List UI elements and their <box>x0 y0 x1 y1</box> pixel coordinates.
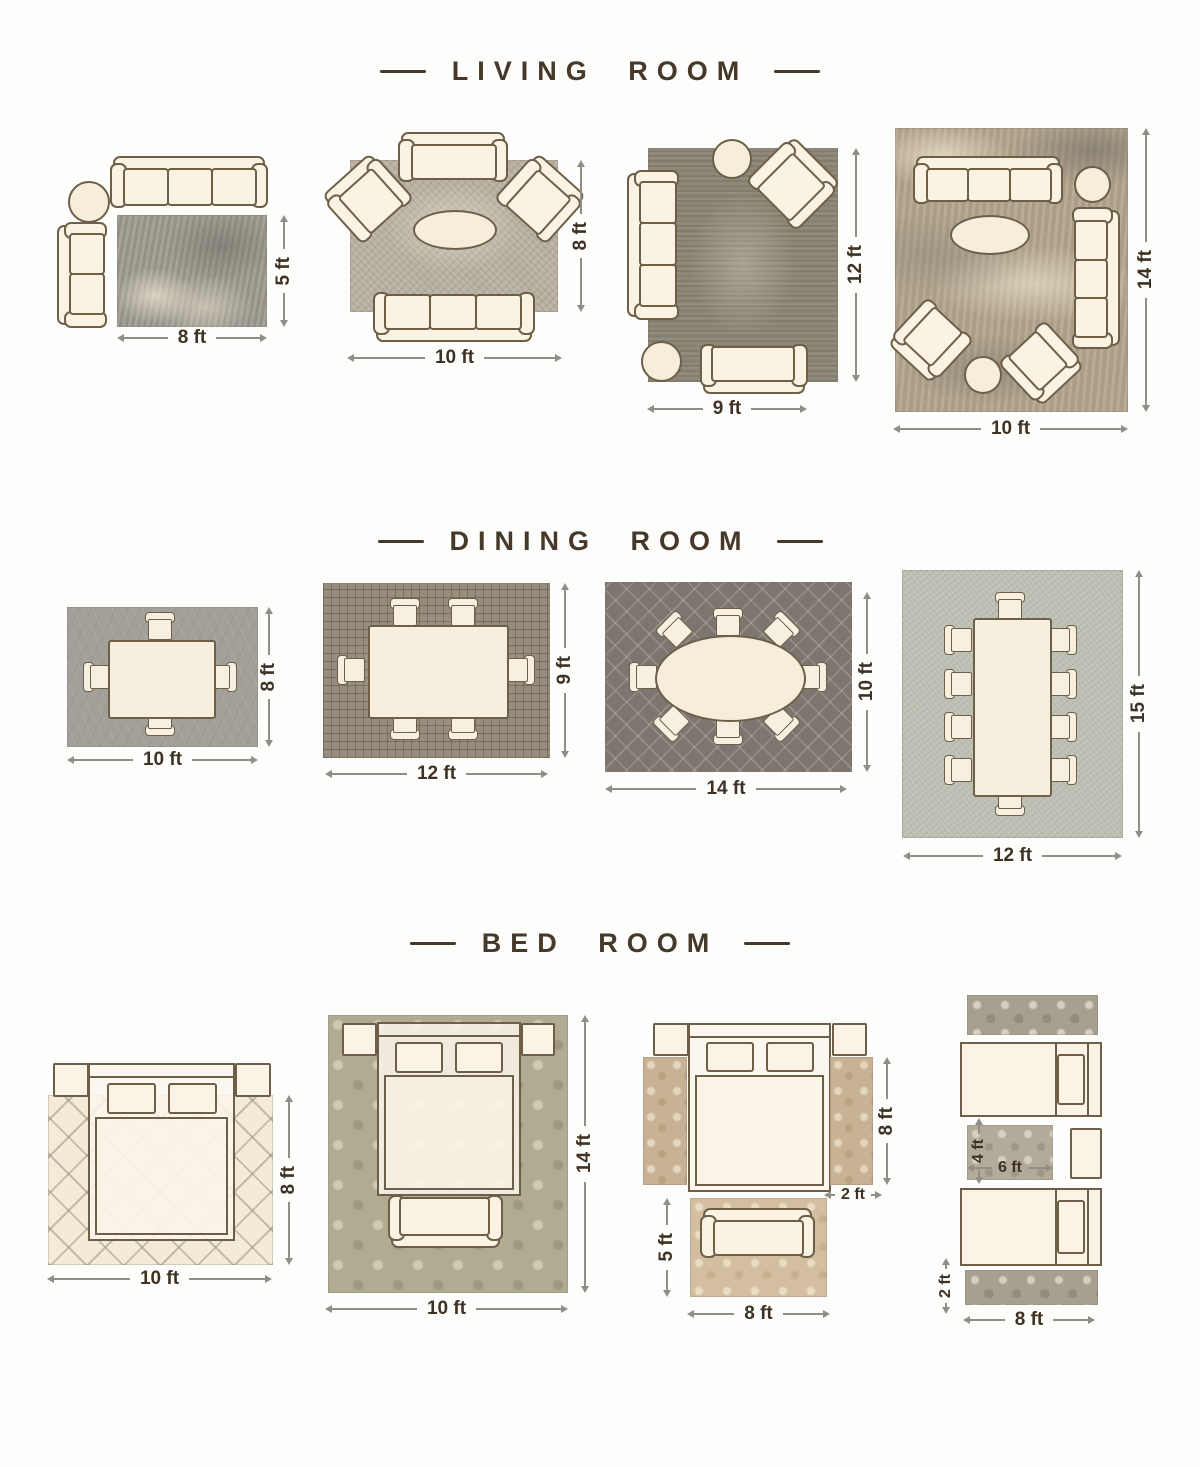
dim-line <box>216 337 260 339</box>
pillow <box>1057 1054 1085 1105</box>
dim-line <box>666 1205 668 1225</box>
coffee-table <box>413 210 497 250</box>
dimension-height: 5 ft <box>273 215 295 327</box>
dim-label: 8 ft <box>168 327 217 349</box>
dim-label: 12 ft <box>845 237 867 292</box>
dim-line <box>756 788 840 790</box>
dim-line <box>476 1308 561 1310</box>
dim-line <box>900 428 981 430</box>
title-dash <box>744 942 790 945</box>
side-table <box>964 356 1002 394</box>
chair-seat <box>951 758 972 782</box>
pillow <box>455 1042 503 1073</box>
dim-label: 14 ft <box>696 778 755 800</box>
dining-chair <box>1049 755 1077 785</box>
pillow <box>1057 1200 1085 1253</box>
dim-line <box>54 1278 130 1280</box>
sofa-cushions <box>123 168 255 206</box>
nightstand <box>832 1023 867 1056</box>
chair-seat <box>951 628 972 652</box>
dim-line <box>866 710 868 765</box>
sofa-cushion <box>429 294 476 330</box>
dim-label: 10 ft <box>417 1298 476 1320</box>
dim-label: 10 ft <box>856 654 878 709</box>
sofa-cushion <box>967 168 1010 202</box>
sofa-cushion <box>384 294 431 330</box>
chair-seat <box>636 665 657 689</box>
dim-line <box>564 693 566 751</box>
nightstand <box>1070 1128 1102 1179</box>
dining-chair <box>507 655 535 685</box>
section-title-text: BED ROOM <box>482 928 719 959</box>
dining-table-oval <box>655 635 806 722</box>
dimension-center-rug-width: 6 ft <box>967 1157 1053 1179</box>
nightstand <box>653 1023 689 1056</box>
coffee-table <box>950 215 1030 255</box>
dim-label: 10 ft <box>130 1268 189 1290</box>
sofa-cushions <box>386 294 522 330</box>
dimension-width: 12 ft <box>325 763 548 785</box>
sofa-cushion <box>639 222 677 265</box>
dimension-width: 8 ft <box>117 327 267 349</box>
dim-line <box>783 1313 823 1315</box>
loveseat <box>398 132 508 182</box>
chair-seat <box>451 605 475 626</box>
sofa-cushions <box>401 1197 490 1236</box>
sofa-cushion <box>1074 297 1108 338</box>
dining-chair <box>145 612 175 640</box>
chair-seat <box>951 715 972 739</box>
dim-line <box>584 1182 586 1286</box>
dim-line <box>466 773 541 775</box>
dining-chair <box>390 598 420 626</box>
dim-line <box>580 167 582 214</box>
dim-label: 14 ft <box>1135 242 1157 297</box>
sofa-cushions <box>926 168 1050 202</box>
pillow <box>706 1042 754 1072</box>
sofa <box>1072 207 1120 349</box>
dim-line <box>1040 428 1121 430</box>
headboard <box>379 1024 519 1037</box>
dim-label: 5 ft <box>656 1225 678 1270</box>
dim-label: 8 ft <box>278 1158 300 1203</box>
sofa-cushions <box>713 346 795 382</box>
headboard <box>1087 1044 1100 1115</box>
nightstand <box>53 1063 89 1097</box>
loveseat <box>57 222 107 328</box>
dim-label: 6 ft <box>992 1159 1028 1177</box>
headboard <box>90 1065 233 1078</box>
dimension-width: 14 ft <box>605 778 847 800</box>
bed-room-title: BED ROOM <box>0 928 1200 959</box>
loveseat <box>700 1208 815 1258</box>
dimension-width: 10 ft <box>67 749 258 771</box>
dim-line <box>74 759 133 761</box>
sofa-cushion <box>475 294 522 330</box>
chair-seat <box>148 619 172 640</box>
dim-line <box>283 293 285 320</box>
dimension-width: 10 ft <box>893 418 1128 440</box>
dim-line <box>694 1313 734 1315</box>
dim-label: 8 ft <box>876 1099 898 1144</box>
sofa-cushion <box>1009 168 1052 202</box>
dim-label: 9 ft <box>703 398 752 420</box>
chair-seat <box>951 672 972 696</box>
dim-line <box>484 357 555 359</box>
dim-line <box>332 1308 417 1310</box>
dim-label: 8 ft <box>734 1303 783 1325</box>
sofa-cushion <box>711 346 795 382</box>
dim-line <box>1138 732 1140 831</box>
dim-line <box>288 1102 290 1158</box>
dimension-width: 9 ft <box>647 398 807 420</box>
dimension-height: 8 ft <box>278 1095 300 1265</box>
dimension-height: 10 ft <box>856 592 878 772</box>
dining-chair <box>629 662 657 692</box>
dim-label: 2 ft <box>937 1269 955 1303</box>
sofa-cushion <box>69 233 105 275</box>
dim-line <box>970 1319 1005 1321</box>
dim-line <box>580 258 582 305</box>
dim-line <box>1028 1167 1046 1169</box>
sofa-cushion <box>411 144 497 180</box>
sofa <box>110 156 268 208</box>
living-room-title: LIVING ROOM <box>0 56 1200 87</box>
dimension-width: 10 ft <box>347 347 562 369</box>
dim-line <box>268 699 270 740</box>
title-dash <box>410 942 456 945</box>
headboard <box>690 1025 829 1038</box>
section-title-text: LIVING ROOM <box>452 56 749 87</box>
dimension-accent-rug-width: 8 ft <box>687 1303 830 1325</box>
title-dash <box>777 540 823 543</box>
dimension-height: 9 ft <box>554 583 576 758</box>
blanket <box>95 1117 228 1235</box>
side-table <box>641 341 682 382</box>
dim-line <box>268 614 270 655</box>
dimension-height: 14 ft <box>574 1015 596 1293</box>
sofa-cushions <box>639 183 677 307</box>
chair-seat <box>716 615 740 636</box>
dim-line <box>855 293 857 375</box>
dim-line <box>666 1270 668 1290</box>
dimension-runner-width: 8 ft <box>963 1309 1095 1331</box>
sofa-cushions <box>69 235 105 315</box>
title-dash <box>774 70 820 73</box>
sofa-cushions <box>1074 220 1108 336</box>
sofa <box>373 292 535 342</box>
dining-room-title: DINING ROOM <box>0 526 1200 557</box>
sofa <box>913 156 1063 204</box>
sofa-cushion <box>69 273 105 315</box>
dim-line <box>866 599 868 654</box>
dim-line <box>354 357 425 359</box>
dim-line <box>974 1167 992 1169</box>
blanket <box>695 1075 824 1186</box>
side-table <box>1074 166 1111 203</box>
dimension-width: 10 ft <box>47 1268 272 1290</box>
pillow <box>766 1042 814 1072</box>
dining-table <box>368 625 509 719</box>
title-dash <box>380 70 426 73</box>
dining-chair <box>1049 712 1077 742</box>
bed <box>960 1188 1102 1266</box>
bed <box>377 1022 521 1196</box>
dim-line <box>332 773 407 775</box>
dim-line <box>1145 298 1147 405</box>
dim-line <box>584 1022 586 1126</box>
dim-line <box>564 590 566 648</box>
side-table <box>712 139 752 179</box>
dimension-height: 15 ft <box>1128 570 1150 838</box>
bed <box>960 1042 1102 1117</box>
sofa-cushion <box>211 168 257 206</box>
dim-label: 10 ft <box>425 347 484 369</box>
pillow <box>395 1042 443 1073</box>
chair-seat <box>393 605 417 626</box>
dining-table <box>108 640 216 719</box>
dimension-height: 8 ft <box>570 160 592 312</box>
dimension-runner-height: 2 ft <box>935 1258 957 1314</box>
dining-table <box>973 618 1052 797</box>
dim-line <box>192 759 251 761</box>
sofa-cushion <box>926 168 969 202</box>
dim-line <box>945 1303 947 1307</box>
dimension-width: 12 ft <box>903 845 1122 867</box>
sofa-cushion <box>1074 259 1108 300</box>
dimension-height: 8 ft <box>258 607 280 747</box>
dining-chair <box>1049 625 1077 655</box>
blanket <box>384 1075 514 1190</box>
dim-line <box>871 1194 875 1196</box>
bench <box>388 1195 503 1248</box>
dining-chair <box>448 598 478 626</box>
dim-line <box>910 855 983 857</box>
bed <box>88 1063 235 1241</box>
chair-seat <box>1049 758 1070 782</box>
dim-label: 14 ft <box>574 1126 596 1181</box>
dimension-height: 14 ft <box>1135 128 1157 412</box>
dim-line <box>886 1064 888 1099</box>
dim-label: 12 ft <box>407 763 466 785</box>
section-title-text: DINING ROOM <box>450 526 751 557</box>
dim-line <box>612 788 696 790</box>
rug-size-guide: LIVING ROOM 8 ft 5 ft <box>0 0 1200 1467</box>
dim-line <box>283 222 285 249</box>
headboard <box>1087 1190 1100 1264</box>
pillow <box>107 1083 156 1114</box>
nightstand <box>235 1063 271 1097</box>
chair-seat <box>344 658 365 682</box>
sofa <box>627 170 679 320</box>
dim-label: 10 ft <box>981 418 1040 440</box>
chair-seat <box>1049 628 1070 652</box>
bed <box>688 1023 831 1192</box>
dining-chair <box>1049 669 1077 699</box>
dimension-width: 10 ft <box>325 1298 568 1320</box>
dim-line <box>886 1143 888 1178</box>
chair-seat <box>998 599 1022 620</box>
nightstand <box>521 1023 555 1056</box>
title-dash <box>378 540 424 543</box>
dim-label: 5 ft <box>273 249 295 294</box>
rug-8x5 <box>117 215 267 327</box>
dim-line <box>1145 135 1147 242</box>
dim-line <box>654 408 703 410</box>
dim-line <box>1053 1319 1088 1321</box>
runner-rug <box>643 1057 687 1185</box>
chair-seat <box>1049 672 1070 696</box>
dim-label: 15 ft <box>1128 676 1150 731</box>
runner-rug <box>965 1270 1098 1305</box>
chair-seat <box>507 658 528 682</box>
dimension-height: 12 ft <box>845 148 867 382</box>
side-table <box>68 181 110 223</box>
dim-line <box>978 1125 980 1134</box>
dining-chair <box>944 669 972 699</box>
dim-line <box>1138 577 1140 676</box>
dim-line <box>751 408 800 410</box>
dining-chair <box>83 662 111 692</box>
dim-label: 8 ft <box>258 655 280 700</box>
dining-chair <box>944 755 972 785</box>
dim-label: 2 ft <box>835 1186 871 1204</box>
dim-line <box>288 1202 290 1258</box>
loveseat <box>700 344 808 394</box>
dining-chair <box>337 655 365 685</box>
sofa-cushion <box>639 181 677 224</box>
sofa-cushions <box>713 1220 802 1256</box>
dim-label: 12 ft <box>983 845 1042 867</box>
sofa-cushion <box>713 1220 804 1256</box>
dim-line <box>124 337 168 339</box>
sofa-cushion <box>167 168 213 206</box>
nightstand <box>342 1023 377 1056</box>
dim-label: 9 ft <box>554 648 576 693</box>
dining-chair <box>713 608 743 636</box>
sofa-cushions <box>411 144 495 180</box>
sofa-cushion <box>123 168 169 206</box>
dim-line <box>189 1278 265 1280</box>
dim-label: 8 ft <box>1005 1309 1054 1331</box>
dimension-runner-width: 2 ft <box>824 1184 882 1206</box>
dimension-runner-height: 8 ft <box>876 1057 898 1185</box>
dim-label: 8 ft <box>570 214 592 259</box>
dining-chair <box>944 712 972 742</box>
pillow <box>168 1083 217 1114</box>
dim-line <box>1042 855 1115 857</box>
sofa-cushion <box>639 264 677 307</box>
runner-rug <box>830 1057 873 1185</box>
dimension-accent-rug-height: 5 ft <box>656 1198 678 1297</box>
dining-chair <box>944 625 972 655</box>
chair-seat <box>1049 715 1070 739</box>
runner-rug <box>967 995 1098 1035</box>
dining-chair <box>995 592 1025 620</box>
dim-label: 10 ft <box>133 749 192 771</box>
sofa-cushion <box>1074 220 1108 261</box>
dim-line <box>855 155 857 237</box>
sofa-cushion <box>399 1197 490 1236</box>
